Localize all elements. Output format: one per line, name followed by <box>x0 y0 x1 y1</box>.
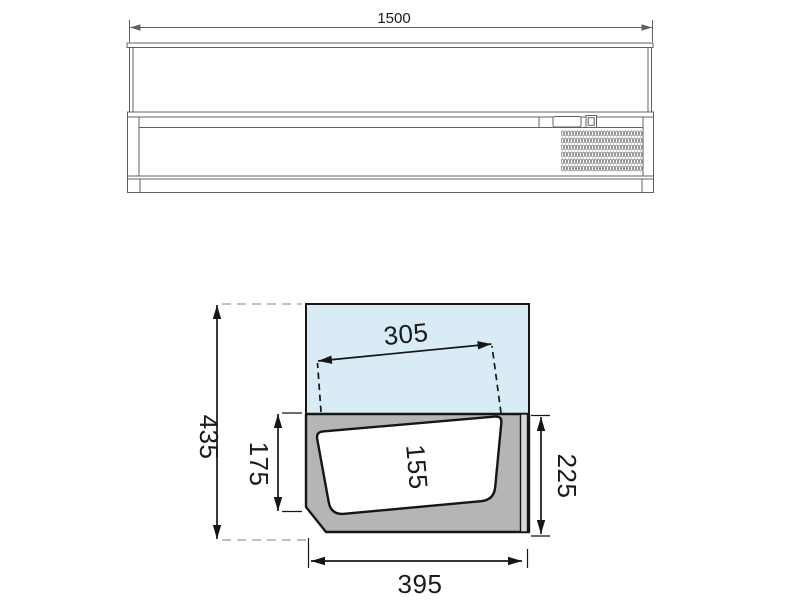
front-view <box>127 20 654 193</box>
dim-395-label: 395 <box>398 569 443 599</box>
dim-1500-label: 1500 <box>377 10 410 27</box>
drawing-canvas: 1500 <box>0 0 800 600</box>
rear-panel-strip <box>521 414 528 532</box>
section-view: 305 435 175 155 225 395 <box>194 304 582 599</box>
controller-display <box>553 117 581 128</box>
top-cap <box>127 43 653 48</box>
dim-305-label: 305 <box>382 317 430 351</box>
construction-lines <box>222 304 312 540</box>
glass-front-panel <box>130 48 652 113</box>
technical-drawing-sheet: 1500 <box>0 0 800 600</box>
dim-175-label: 175 <box>244 442 274 487</box>
dim-435-label: 435 <box>194 415 224 460</box>
ventilation-grille <box>561 130 643 172</box>
dim-225-label: 225 <box>552 454 582 499</box>
dim-155-label: 155 <box>400 443 434 490</box>
